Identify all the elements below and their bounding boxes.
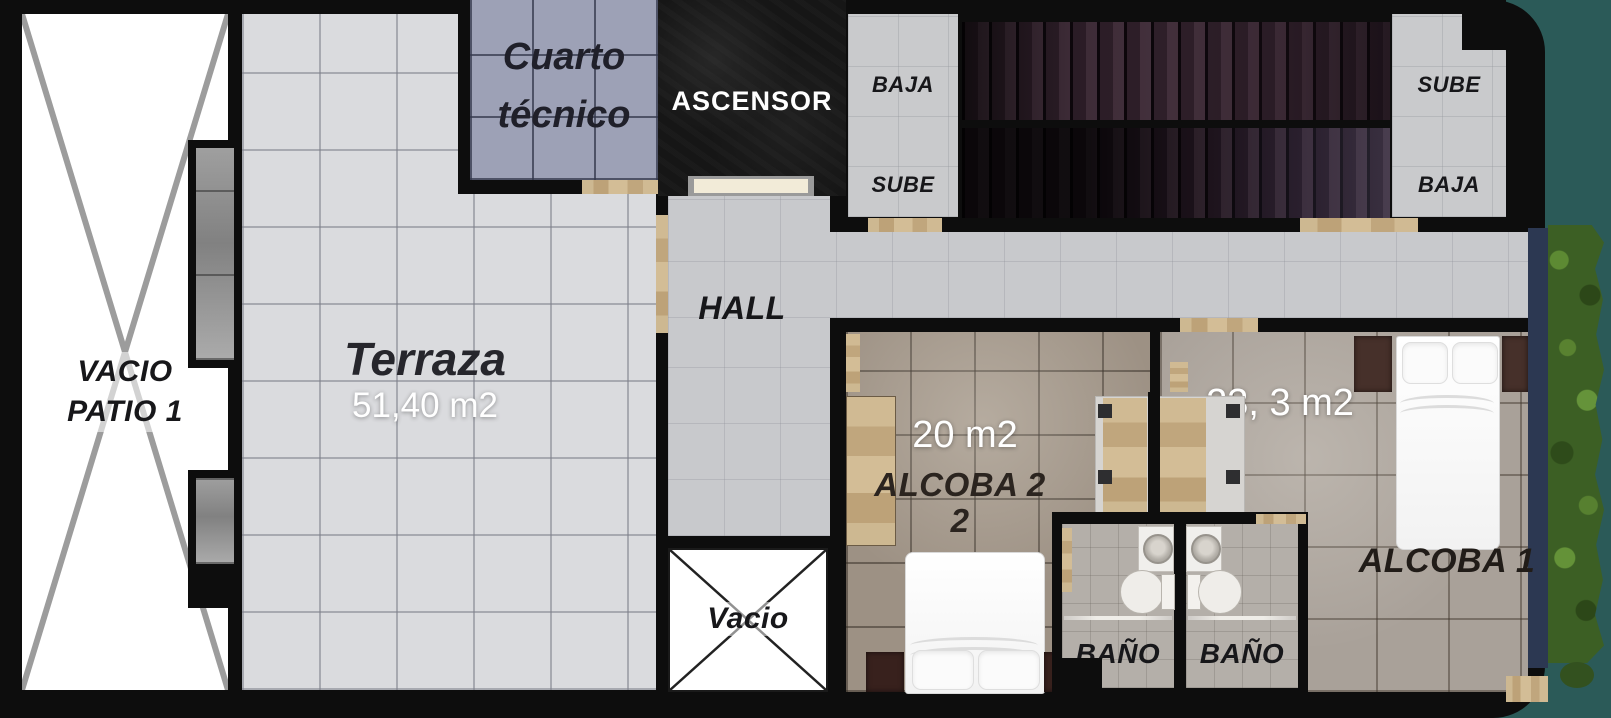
room-ascensor: ASCENSOR bbox=[658, 0, 846, 196]
stairs-flight-upper bbox=[962, 22, 1390, 120]
floor-plan-canvas: VACIO PATIO 1 Terraza 51,40 m2 Cuarto té… bbox=[0, 0, 1611, 718]
sink-basin bbox=[1143, 534, 1173, 564]
window-panel bbox=[196, 148, 234, 360]
wood-threshold bbox=[1170, 362, 1188, 392]
wall-notch bbox=[1062, 658, 1102, 692]
plants-strip bbox=[1548, 225, 1604, 663]
alcoba2-area: 20 m2 bbox=[880, 414, 1050, 457]
wood-threshold bbox=[582, 180, 658, 194]
wood-threshold bbox=[1300, 218, 1418, 232]
stairs-left-top-label: BAJA bbox=[848, 72, 958, 98]
tech-room-label-line1: Cuarto bbox=[470, 28, 658, 86]
stairs-right-top-label: SUBE bbox=[1392, 72, 1506, 98]
toilet-tank bbox=[1161, 574, 1175, 610]
closet-wood-right bbox=[1160, 398, 1206, 520]
window-bulge-lower bbox=[188, 470, 242, 608]
terraza-area: 51,40 m2 bbox=[280, 386, 570, 426]
wood-threshold bbox=[656, 215, 668, 333]
pillow bbox=[1452, 342, 1498, 384]
terraza-name: Terraza bbox=[280, 332, 570, 386]
window-bulge-upper bbox=[188, 140, 242, 368]
pillow bbox=[1402, 342, 1448, 384]
ascensor-label: ASCENSOR bbox=[658, 86, 846, 117]
wood-threshold bbox=[868, 218, 942, 232]
stairs-left-bottom-label: SUBE bbox=[848, 172, 958, 198]
stairs-flight-lower bbox=[962, 128, 1390, 218]
plant-blob bbox=[1560, 662, 1594, 688]
bano-right-label: BAÑO bbox=[1186, 638, 1298, 670]
toilet bbox=[1198, 570, 1242, 614]
shower-glass bbox=[1064, 616, 1172, 620]
pillow bbox=[978, 650, 1040, 690]
window-wall bbox=[1528, 228, 1548, 668]
divider-wall bbox=[1148, 392, 1160, 526]
tech-room-label-line2: técnico bbox=[470, 86, 658, 144]
patio-label-line2: PATIO 1 bbox=[22, 392, 228, 432]
pillow bbox=[912, 650, 974, 690]
alcoba2-name: ALCOBA 2 bbox=[860, 466, 1060, 504]
bed-fold bbox=[1400, 405, 1494, 422]
sink-basin bbox=[1191, 534, 1221, 564]
stair-landing-left: BAJA SUBE bbox=[848, 14, 958, 217]
wall-stub bbox=[1462, 0, 1506, 50]
elevator-door bbox=[694, 179, 808, 193]
alcoba2-name-wrap: 2 bbox=[860, 502, 1060, 540]
elevator-door-frame bbox=[688, 176, 814, 196]
alcoba1-name: ALCOBA 1 bbox=[1352, 542, 1542, 581]
stairs-right-bottom-label: BAJA bbox=[1392, 172, 1506, 198]
vacio-label: Vacio bbox=[670, 602, 826, 636]
shower-glass bbox=[1188, 616, 1296, 620]
nightstand bbox=[1502, 336, 1528, 392]
wood-threshold bbox=[1062, 528, 1072, 592]
room-vacio: Vacio bbox=[668, 548, 828, 692]
appliance-knob bbox=[1098, 470, 1112, 484]
wood-threshold bbox=[1180, 318, 1258, 332]
wood-threshold bbox=[1506, 676, 1548, 702]
window-panel bbox=[196, 478, 234, 564]
appliance-knob bbox=[1226, 470, 1240, 484]
room-cuarto-tecnico: Cuarto técnico bbox=[470, 0, 658, 180]
wood-threshold bbox=[1256, 514, 1306, 524]
toilet bbox=[1120, 570, 1164, 614]
hall-label: HALL bbox=[682, 290, 802, 327]
appliance-knob bbox=[1226, 404, 1240, 418]
wood-threshold bbox=[846, 334, 860, 392]
nightstand bbox=[866, 652, 904, 692]
appliance-knob bbox=[1098, 404, 1112, 418]
